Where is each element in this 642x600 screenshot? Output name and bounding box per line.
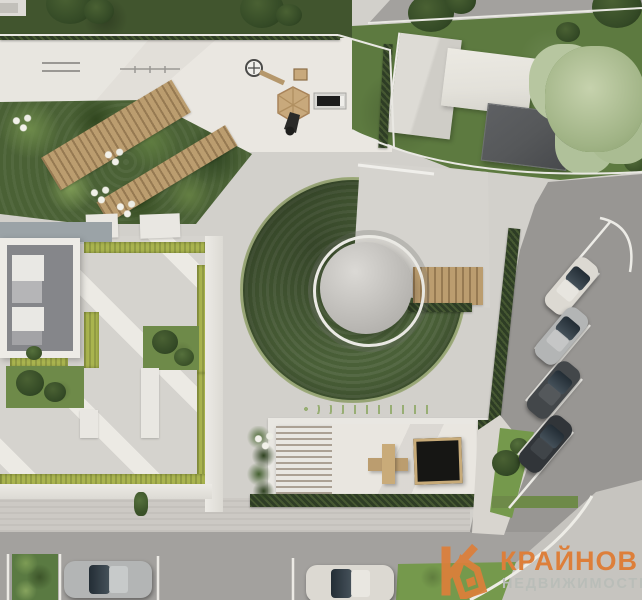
building-wall-edge [0, 484, 212, 499]
bench [317, 96, 340, 106]
planter [12, 554, 58, 600]
brand-tagline: НЕДВИЖИМОСТЬ [502, 576, 642, 592]
tree [152, 330, 178, 354]
tree [556, 22, 580, 42]
hedge [84, 312, 99, 368]
roof-block [12, 307, 44, 331]
bench-pad [140, 213, 181, 238]
playground [238, 55, 358, 140]
white-flowers [8, 112, 36, 134]
firepit [413, 437, 463, 485]
tree [16, 370, 44, 396]
shrub [134, 492, 148, 516]
car-glass [331, 569, 352, 598]
building-wall-edge [205, 236, 223, 512]
lawn-strip [492, 496, 578, 508]
bench [141, 368, 159, 438]
hedge [250, 494, 492, 507]
car [306, 565, 394, 600]
tree [624, 152, 642, 172]
roof-block [12, 255, 44, 281]
brand-name: КРАЙНОВ [500, 546, 638, 577]
watermark: КРАЙНОВ НЕДВИЖИМОСТЬ [438, 540, 642, 600]
roof-block [12, 331, 42, 345]
tree [545, 46, 642, 152]
tree [174, 348, 194, 366]
tree [492, 450, 520, 476]
apartment-building-roof [0, 238, 80, 358]
tree [26, 346, 42, 360]
grass-tufts [300, 405, 430, 414]
tree [276, 4, 302, 26]
car [64, 561, 152, 598]
play-chair [294, 69, 307, 80]
bench-beam [382, 444, 395, 484]
car-roof [351, 570, 370, 597]
bench-arm [340, 96, 344, 106]
balance-beam [260, 72, 284, 83]
cross-bench [368, 444, 408, 484]
dome-pavilion [320, 242, 412, 334]
tree [44, 382, 66, 402]
hedge [84, 242, 206, 253]
edge-structure [0, 3, 18, 13]
k-house-icon [438, 543, 496, 599]
fence-hedge [0, 34, 340, 40]
slide-end [286, 127, 295, 136]
site-plan-render: КРАЙНОВ НЕДВИЖИМОСТЬ [0, 0, 642, 600]
white-flowers [100, 146, 128, 168]
car-roof [109, 566, 128, 593]
roof-block [12, 281, 42, 303]
white-flowers [250, 430, 278, 452]
bench [80, 410, 98, 438]
pergola [276, 426, 332, 496]
white-flowers [86, 184, 114, 206]
car-glass [89, 565, 110, 594]
